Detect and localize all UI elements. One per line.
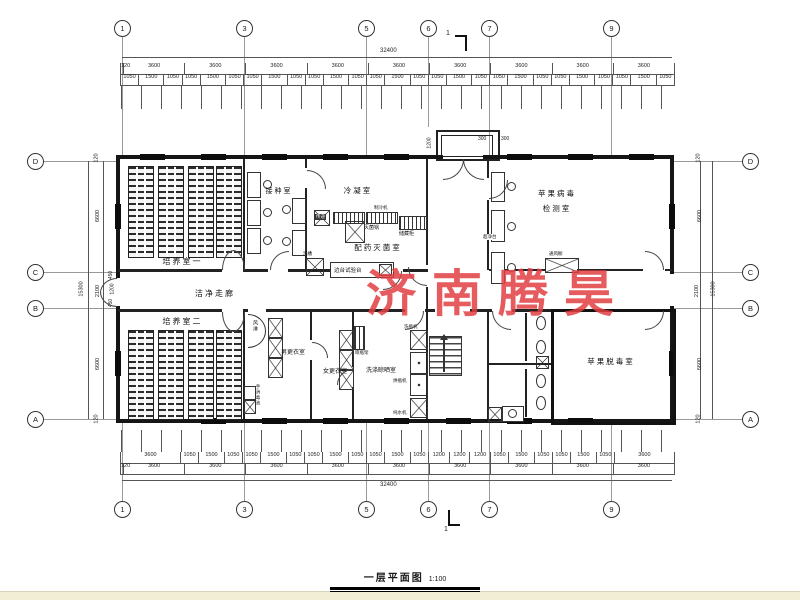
door-inoculation — [270, 251, 289, 270]
dim-right-total: 15300 — [711, 281, 717, 296]
door-men-changing — [312, 342, 328, 358]
dim-value: 1050 — [613, 74, 631, 85]
grid-bubble-bottom-9: 9 — [603, 501, 620, 518]
window — [115, 351, 121, 376]
dim-value: 1050 — [367, 452, 385, 463]
dim-value: 1050 — [534, 74, 552, 85]
dim-line-right — [700, 161, 701, 419]
dim-left-total: 15300 — [79, 281, 85, 296]
wall-toilet — [525, 369, 527, 417]
dim-value: 1500 — [509, 452, 535, 463]
bottle-dryer-box — [410, 374, 428, 396]
room-label-condensation: 冷凝室 — [330, 185, 386, 196]
grid-bubble-label: 3 — [242, 505, 246, 514]
dim-value: 1500 — [385, 74, 410, 85]
room-label-inoculation: 接种室 — [254, 186, 304, 196]
drying-rack-box — [354, 326, 365, 350]
dim-value: 3600 — [185, 63, 246, 74]
dim-porch-depth: 1200 — [427, 137, 433, 148]
stool — [282, 237, 291, 246]
grid-bubble-label: C — [748, 268, 753, 277]
window — [629, 154, 654, 160]
dim-value: 1050 — [306, 74, 324, 85]
grid-bubble-top-3: 3 — [236, 20, 253, 37]
dim-value: 1050 — [183, 74, 201, 85]
dim-value: 3600 — [491, 463, 552, 474]
window — [384, 418, 409, 424]
wall-interior — [352, 387, 354, 419]
grid-bubble-label: 5 — [364, 505, 368, 514]
section-mark-bottom-bracket — [448, 510, 460, 526]
room-label-detox: 苹果脱毒室 — [574, 356, 648, 367]
grid-line — [44, 161, 116, 162]
label-drying-rack: 晾瓶架 — [355, 350, 369, 356]
dim-bottom-total: 32400 — [380, 482, 397, 488]
window — [568, 154, 593, 160]
dim-value: 1050 — [552, 74, 570, 85]
wall-interior — [310, 360, 312, 419]
dim-value: 3600 — [614, 63, 675, 74]
label-pass-window: 传递 — [315, 214, 326, 220]
stair-arrow-shaft — [443, 338, 445, 372]
dim-value: 1050 — [367, 74, 385, 85]
wall-interior — [118, 309, 222, 312]
grid-line — [44, 272, 116, 273]
dim-value: 1050 — [181, 452, 199, 463]
dim-value: 1500 — [199, 452, 225, 463]
label-water-purifier: 纯水机 — [393, 410, 407, 416]
dim-value: 1500 — [385, 452, 411, 463]
grid-bubble-label: 3 — [242, 24, 246, 33]
grid-bubble-label: D — [748, 157, 753, 166]
dim-value: 1200 — [470, 452, 491, 463]
clean-bench — [292, 198, 306, 224]
window — [201, 154, 226, 160]
wall-interior — [665, 269, 672, 271]
door-condensation — [307, 170, 326, 189]
stool — [263, 236, 272, 245]
washbasin-unit — [488, 407, 502, 422]
window — [384, 154, 409, 160]
window — [115, 204, 121, 229]
grid-bubble-label: 1 — [120, 505, 124, 514]
dim-porch-w1: 300 — [478, 136, 486, 142]
dim-value: 1200 — [450, 452, 471, 463]
dim-value: 1050 — [597, 452, 615, 463]
dim-right-cb: 2100 — [694, 285, 700, 297]
dim-value: 3600 — [553, 463, 614, 474]
grid-bubble-label: C — [33, 268, 38, 277]
drawing-title: 一层平面图 — [364, 573, 424, 584]
window — [262, 154, 287, 160]
grid-bubble-right-B: B — [742, 300, 759, 317]
clean-bench — [247, 228, 261, 254]
dim-value: 3600 — [308, 463, 369, 474]
room-label-women-changing: 女更衣室 — [314, 366, 356, 375]
dim-right-edge-bottom: 120 — [696, 414, 702, 423]
section-mark-top-label: 1 — [446, 30, 450, 37]
window — [446, 418, 471, 424]
dim-value: 1050 — [411, 74, 429, 85]
grid-bubble-top-6: 6 — [420, 20, 437, 37]
dim-value: 1050 — [472, 74, 490, 85]
sterilizer-box — [345, 221, 365, 243]
section-mark-top-bracket — [455, 35, 467, 51]
dim-value: 1050 — [244, 74, 262, 85]
label-chiller: 制冷机 — [374, 205, 388, 211]
wall-interior — [487, 159, 489, 178]
toilet — [536, 396, 546, 410]
grid-bubble-left-C: C — [27, 264, 44, 281]
grid-bubble-right-A: A — [742, 411, 759, 428]
sink-box — [306, 258, 324, 276]
dim-right-dc: 6600 — [697, 210, 703, 222]
dim-value: 3600 — [491, 63, 552, 74]
dim-value: 3600 — [614, 463, 675, 474]
grid-bubble-left-D: D — [27, 153, 44, 170]
grid-bubble-bottom-5: 5 — [358, 501, 375, 518]
dim-value: 1500 — [201, 74, 226, 85]
dim-value: 1050 — [411, 452, 429, 463]
dim-value: 3600 — [430, 463, 491, 474]
floor-plan-drawing: 1 3 5 6 7 9 1 3 5 6 7 9 D C B A D C B A … — [0, 0, 800, 600]
culture-rack — [188, 330, 214, 420]
bottom-bar — [0, 591, 800, 600]
dim-left-dc: 6600 — [95, 210, 101, 222]
grid-bubble-right-D: D — [742, 153, 759, 170]
grid-line — [44, 419, 116, 420]
room-label-culture1: 培养室一 — [140, 256, 225, 267]
dim-value: 1050 — [657, 74, 675, 85]
dim-value: 1050 — [121, 74, 139, 85]
window — [507, 154, 532, 160]
label-sink: 洗槽 — [303, 251, 312, 257]
stool — [282, 205, 291, 214]
room-label-corridor: 洁净走廊 — [170, 288, 260, 299]
dim-value: 3600 — [185, 463, 246, 474]
dim-value: 3600 — [430, 63, 491, 74]
dim-value: 1050 — [349, 74, 367, 85]
dim-value: 1050 — [288, 74, 306, 85]
room-label-hand-sanitizer: 手消毒池 — [255, 384, 261, 406]
toilet — [536, 340, 546, 354]
culture-rack — [158, 166, 184, 258]
dim-value: 3600 — [553, 63, 614, 74]
door-detection-corridor — [645, 251, 664, 270]
title-underline-thin — [330, 591, 480, 592]
dim-value: 3600 — [124, 63, 185, 74]
door-detection-lobby — [489, 180, 508, 199]
dim-value: 1050 — [349, 452, 367, 463]
dim-value: 1050 — [595, 74, 613, 85]
dim-value: 1200 — [429, 452, 450, 463]
grid-bubble-label: B — [748, 304, 753, 313]
grid-line — [674, 419, 742, 420]
dim-value: 3600 — [121, 452, 181, 463]
dim-ticks-top — [121, 85, 674, 109]
dim-value: 1500 — [508, 74, 533, 85]
dim-value: 1500 — [571, 452, 597, 463]
room-label-culture2: 培养室二 — [140, 316, 225, 327]
grid-bubble-label: D — [33, 157, 38, 166]
stool — [507, 222, 516, 231]
label-clean-bench: 超净台 — [483, 234, 497, 240]
title-underline-thick — [330, 587, 480, 590]
wall-interior — [310, 309, 312, 340]
grid-line — [674, 272, 742, 273]
locker — [268, 358, 283, 378]
grid-bubble-left-A: A — [27, 411, 44, 428]
grid-bubble-label: A — [748, 415, 753, 424]
window — [323, 154, 348, 160]
grid-bubble-bottom-3: 3 — [236, 501, 253, 518]
stool — [507, 182, 516, 191]
grid-bubble-label: 1 — [120, 24, 124, 33]
dim-value: 1050 — [429, 74, 447, 85]
stair-arrow-head — [440, 334, 448, 340]
dim-ticks-bottom — [121, 430, 674, 452]
dim-value: 1500 — [261, 452, 287, 463]
label-side-bench: 边台试验台 — [334, 266, 362, 274]
dim-line-left-total — [88, 161, 89, 419]
grid-bubble-right-C: C — [742, 264, 759, 281]
grid-line — [674, 308, 742, 309]
culture-rack — [216, 330, 242, 420]
grid-bubble-label: 5 — [364, 24, 368, 33]
dim-value: 3600 — [615, 452, 675, 463]
bench-row — [366, 212, 398, 224]
dim-value: 1050 — [305, 452, 323, 463]
grid-bubble-top-7: 7 — [481, 20, 498, 37]
label-storage-cabinet: 储藏柜 — [399, 230, 414, 237]
dim-right-ba: 6600 — [697, 358, 703, 370]
culture-rack — [128, 330, 154, 420]
room-label-sterilization: 配药灭菌室 — [338, 242, 418, 253]
dim-value: 1050 — [226, 74, 244, 85]
dim-value: 3600 — [308, 63, 369, 74]
wall-interior — [426, 159, 428, 265]
staircase — [429, 336, 462, 376]
dim-value: 3600 — [369, 463, 430, 474]
label-sterilizer: 灭菌锅 — [364, 224, 379, 231]
dim-value: 3600 — [246, 463, 307, 474]
dim-value: 1050 — [535, 452, 553, 463]
dim-value: 1500 — [139, 74, 164, 85]
room-label-air-shower: 风淋 — [252, 320, 259, 332]
grid-bubble-bottom-6: 6 — [420, 501, 437, 518]
dim-value: 1050 — [490, 74, 508, 85]
dim-right-edge-top: 120 — [696, 153, 702, 162]
dim-value: 1050 — [164, 74, 182, 85]
bottle-dryer-box — [410, 352, 428, 374]
wall-interior — [118, 269, 222, 272]
grid-bubble-top-9: 9 — [603, 20, 620, 37]
dim-top-total: 32400 — [380, 48, 397, 54]
window — [323, 418, 348, 424]
room-label-men-changing: 男更衣室 — [272, 347, 314, 356]
dim-porch-w2: 300 — [501, 136, 509, 142]
dim-value: 1050 — [287, 452, 305, 463]
dim-value: 1500 — [324, 74, 349, 85]
door-main-entrance-left — [443, 159, 464, 180]
culture-rack — [216, 166, 242, 258]
toilet — [536, 374, 546, 388]
dim-row-bottom-bays: 120360036003600360036003600360036003600 — [120, 463, 675, 475]
grid-bubble-top-5: 5 — [358, 20, 375, 37]
dim-value: 1050 — [243, 452, 261, 463]
mop-sink-box — [536, 356, 549, 369]
locker — [268, 318, 283, 338]
dim-value: 3600 — [369, 63, 430, 74]
dim-value: 1050 — [553, 452, 571, 463]
wall-interior — [243, 159, 245, 271]
grid-bubble-bottom-1: 1 — [114, 501, 131, 518]
grid-bubble-label: B — [33, 304, 38, 313]
bottle-washer-box — [410, 330, 428, 350]
dim-value: 1500 — [447, 74, 472, 85]
clean-bench — [247, 200, 261, 226]
grid-bubble-bottom-7: 7 — [481, 501, 498, 518]
dim-value: 1500 — [570, 74, 595, 85]
window — [140, 154, 165, 160]
grid-bubble-label: 7 — [487, 24, 491, 33]
locker — [339, 330, 354, 350]
room-label-washing: 洗涤晾晒室 — [356, 365, 406, 374]
storage-cabinet-box — [399, 216, 427, 230]
grid-bubble-label: 6 — [426, 24, 430, 33]
dim-value: 1500 — [631, 74, 656, 85]
wall-interior — [305, 159, 307, 168]
room-label-detection-1: 苹果病毒 — [522, 188, 592, 199]
window — [262, 418, 287, 424]
room-detox-outline — [551, 309, 676, 425]
watermark-text: 济南腾昊 — [366, 254, 630, 326]
culture-rack — [128, 166, 154, 258]
dim-left-edge-top: 120 — [94, 153, 100, 162]
dim-line-bottom-total — [122, 480, 672, 481]
dim-value: 1500 — [323, 452, 349, 463]
water-purifier-box — [410, 398, 428, 418]
grid-bubble-label: A — [33, 415, 38, 424]
window — [669, 204, 675, 229]
title-block: 一层平面图1:100 — [330, 568, 480, 592]
room-label-detection-2: 检测室 — [522, 203, 592, 214]
section-mark-bottom-label: 1 — [444, 526, 448, 533]
grid-bubble-label: 9 — [609, 505, 613, 514]
label-bottle-dryer: 烘瓶机 — [393, 378, 407, 384]
washbasin-bowl — [508, 409, 517, 418]
grid-bubble-top-1: 1 — [114, 20, 131, 37]
dim-value: 1050 — [225, 452, 243, 463]
stool — [263, 208, 272, 217]
grid-bubble-label: 7 — [487, 505, 491, 514]
dim-value: 1500 — [262, 74, 287, 85]
dim-left-ba: 6600 — [95, 358, 101, 370]
dim-line-top-total — [122, 57, 672, 58]
grid-line — [44, 308, 116, 309]
grid-bubble-left-B: B — [27, 300, 44, 317]
dim-left-edge-bottom: 120 — [94, 414, 100, 423]
grid-bubble-label: 6 — [426, 505, 430, 514]
culture-rack — [158, 330, 184, 420]
drawing-scale: 1:100 — [429, 576, 447, 583]
dim-value: 3600 — [246, 63, 307, 74]
wall-interior — [243, 269, 268, 272]
grid-line — [674, 161, 742, 162]
culture-rack — [188, 166, 214, 258]
door-main-entrance-right — [463, 159, 484, 180]
grid-bubble-label: 9 — [609, 24, 613, 33]
dim-value: 1050 — [491, 452, 509, 463]
dim-value: 3600 — [124, 463, 185, 474]
